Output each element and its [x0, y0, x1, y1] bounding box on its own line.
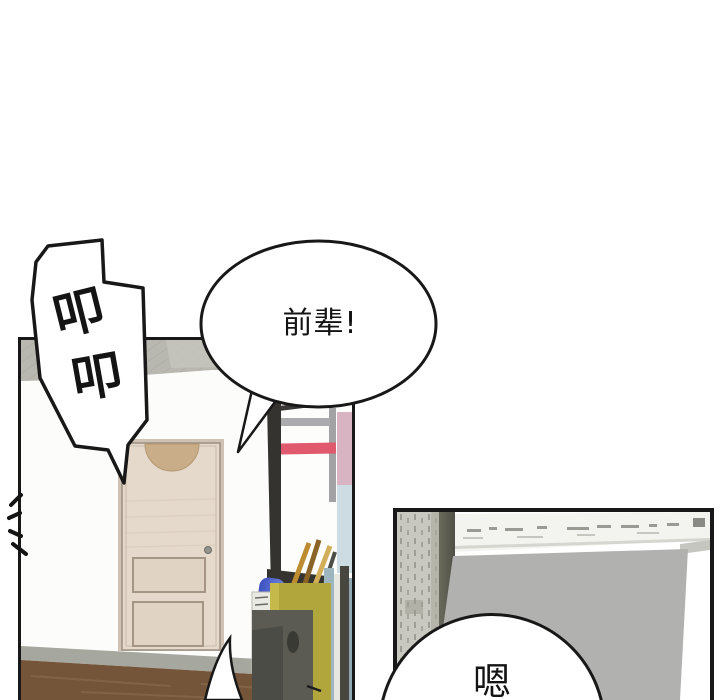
toolbar-icon	[693, 518, 705, 527]
sfx-bubble-knock: 叩 叩	[22, 232, 157, 494]
window-blue-block	[337, 485, 352, 573]
sfx-knock-char: 叩	[68, 348, 126, 406]
book	[349, 578, 352, 700]
door-knob	[205, 547, 212, 554]
speech-bubble-senpai	[196, 238, 442, 458]
knock-impact-marks	[2, 485, 36, 563]
monitor-toolbar	[455, 512, 710, 552]
door-panel-upper	[133, 558, 205, 592]
book	[340, 566, 349, 700]
senpai-bubble-shape	[196, 238, 442, 458]
comic-page: 叩 叩 前辈! 嗯	[0, 0, 720, 700]
speech-text-senpai: 前辈!	[236, 306, 404, 342]
speech-text-hmm: 嗯	[381, 662, 603, 700]
book	[334, 574, 340, 700]
door-panel-lower	[133, 602, 203, 646]
